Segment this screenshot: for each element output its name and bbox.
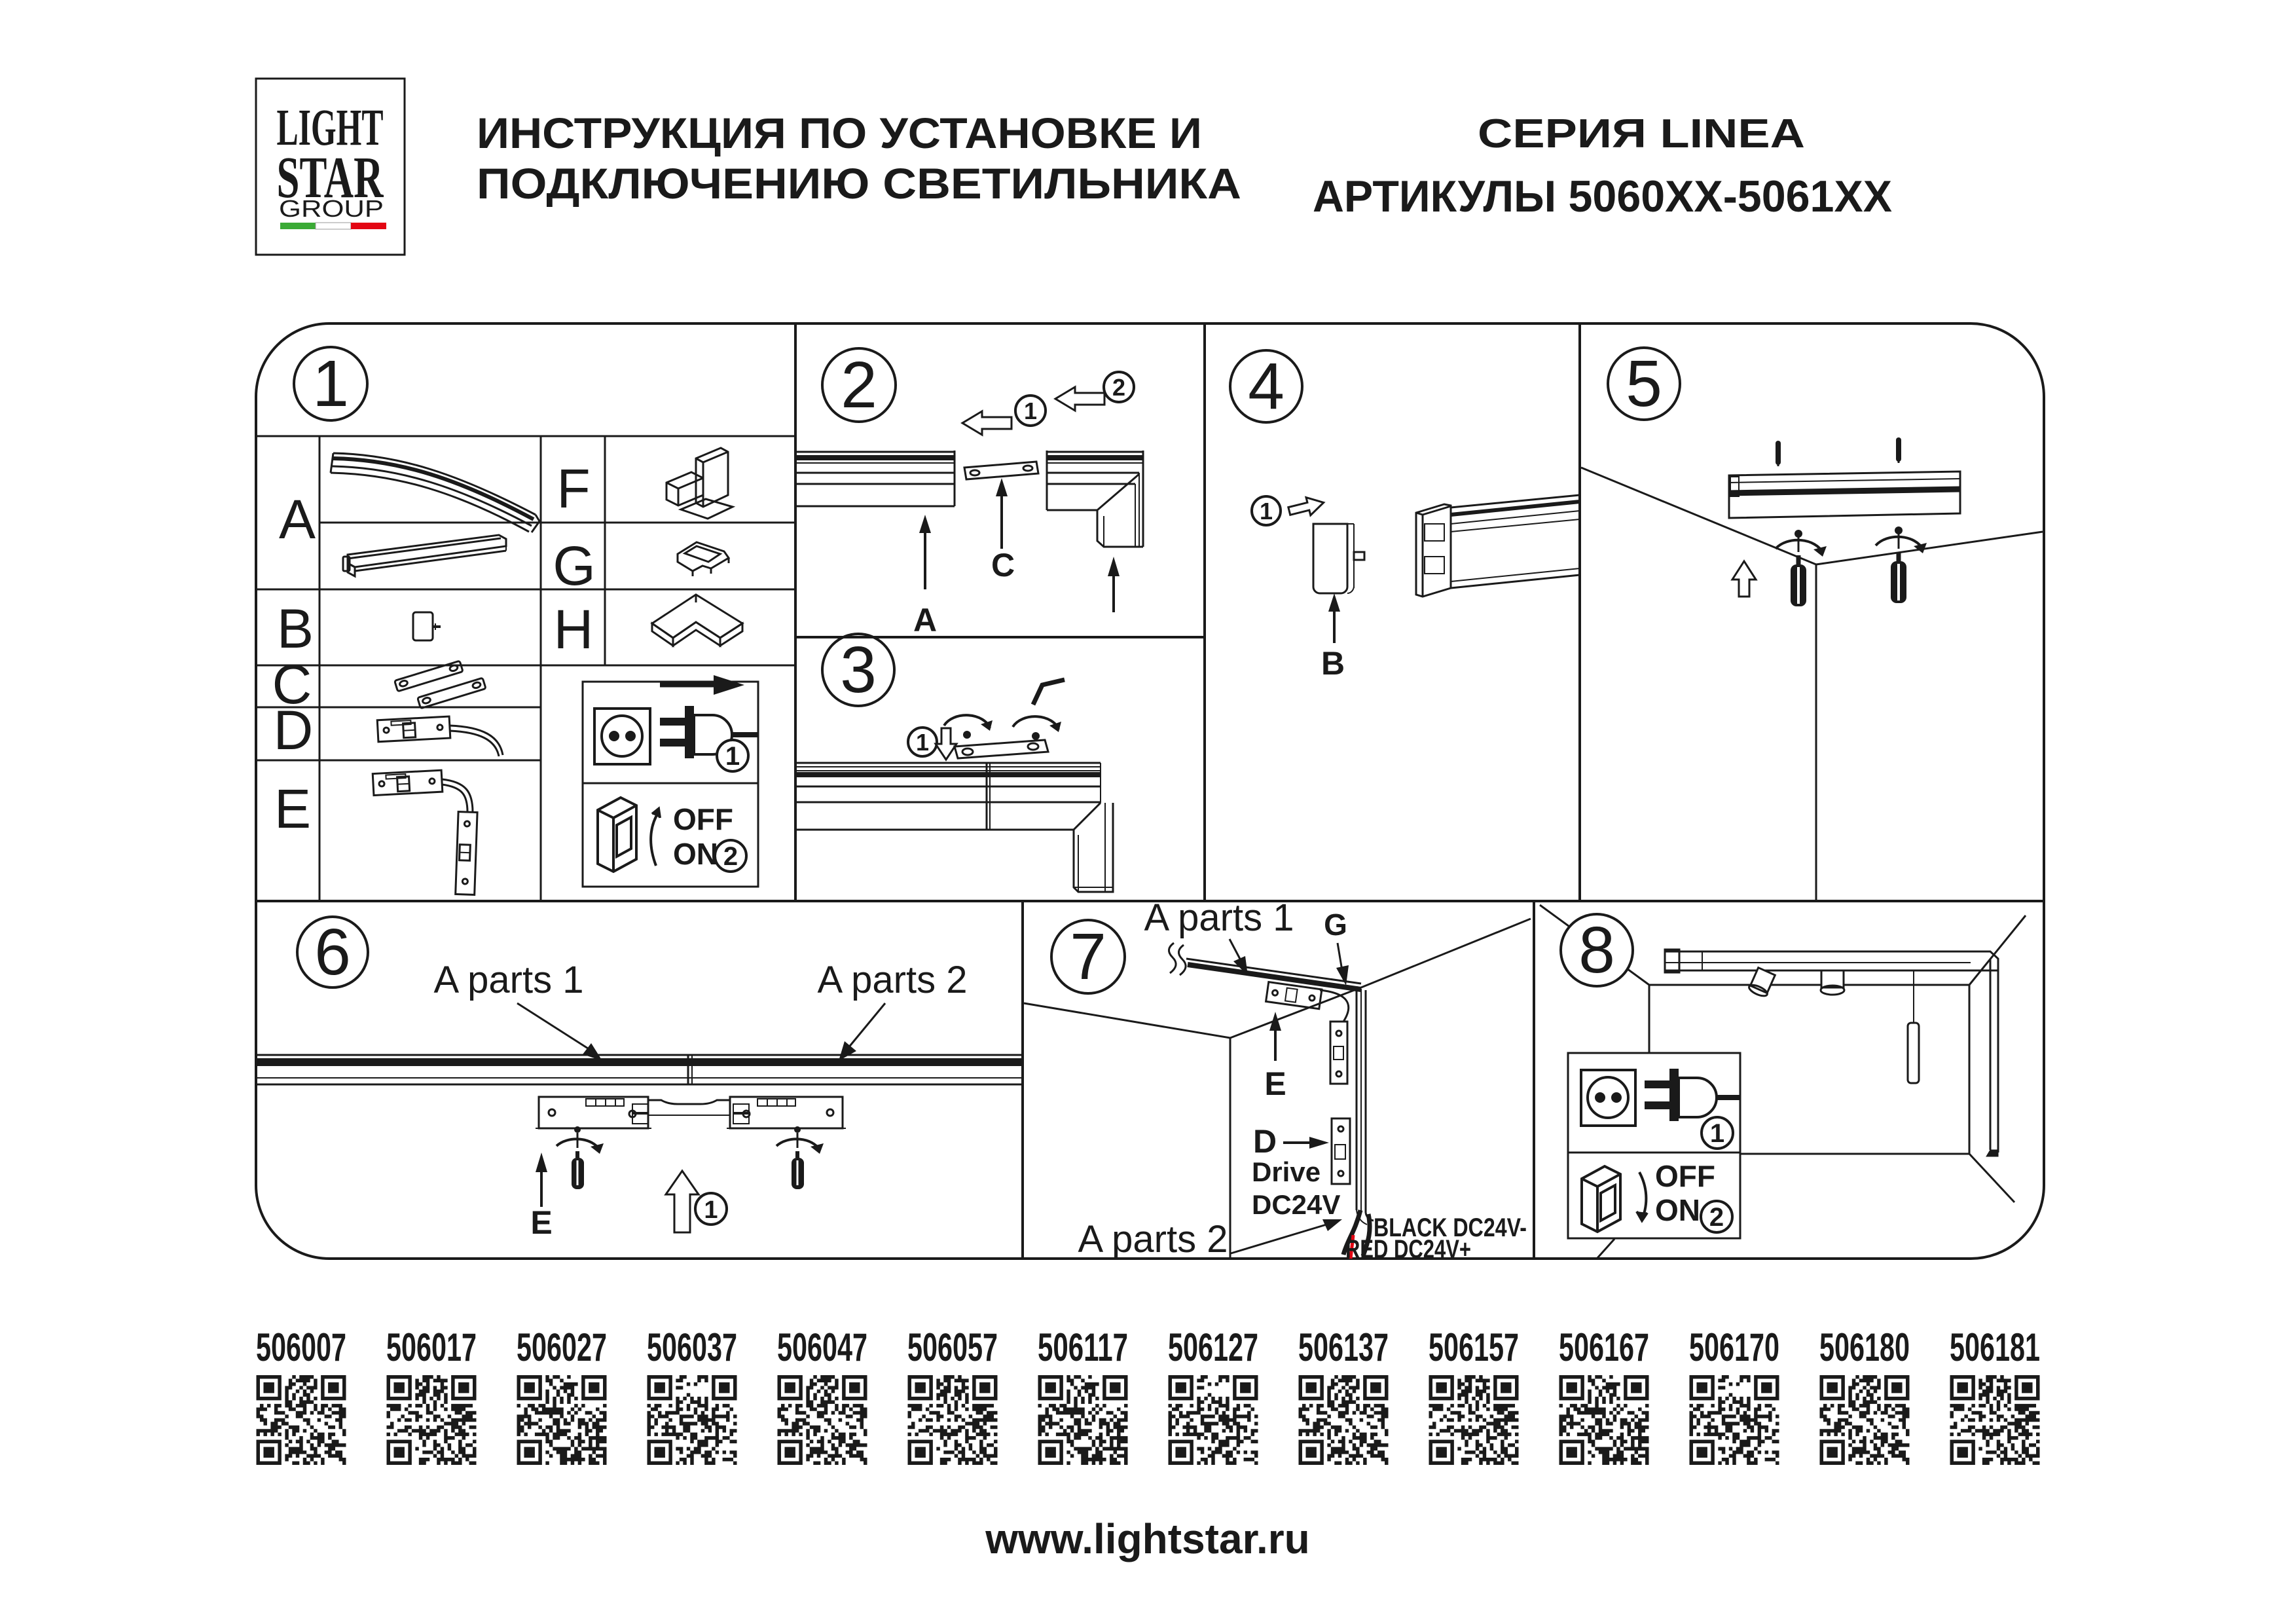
svg-text:506007: 506007 xyxy=(256,1325,346,1369)
svg-text:5: 5 xyxy=(1626,347,1662,420)
svg-text:A: A xyxy=(279,489,316,550)
svg-text:506137: 506137 xyxy=(1298,1325,1389,1369)
svg-text:OFF: OFF xyxy=(673,802,733,836)
svg-text:506157: 506157 xyxy=(1429,1325,1519,1369)
svg-text:1: 1 xyxy=(1260,498,1273,525)
svg-text:D: D xyxy=(274,699,314,761)
svg-text:506127: 506127 xyxy=(1168,1325,1258,1369)
svg-text:H: H xyxy=(554,599,594,660)
svg-text:506181: 506181 xyxy=(1950,1325,2040,1369)
svg-text:E: E xyxy=(530,1204,552,1241)
svg-text:7: 7 xyxy=(1070,920,1106,993)
svg-text:6: 6 xyxy=(314,915,351,989)
svg-text:ON: ON xyxy=(1655,1193,1700,1227)
svg-text:Drive: Drive xyxy=(1252,1156,1321,1187)
svg-text:B: B xyxy=(277,598,314,659)
svg-text:D: D xyxy=(1253,1123,1277,1160)
svg-text:www.lightstar.ru: www.lightstar.ru xyxy=(985,1515,1309,1562)
svg-text:A parts 1: A parts 1 xyxy=(1144,896,1294,939)
svg-text:1: 1 xyxy=(1024,397,1037,424)
svg-text:506167: 506167 xyxy=(1559,1325,1649,1369)
svg-text:2: 2 xyxy=(1112,374,1125,401)
svg-text:DC24V: DC24V xyxy=(1252,1189,1340,1220)
svg-text:506017: 506017 xyxy=(386,1325,477,1369)
svg-text:4: 4 xyxy=(1248,350,1285,423)
svg-text:ON: ON xyxy=(673,837,718,871)
svg-text:OFF: OFF xyxy=(1655,1159,1715,1193)
svg-text:A parts 1: A parts 1 xyxy=(434,959,584,1001)
svg-text:8: 8 xyxy=(1578,913,1615,987)
svg-text:RED DC24V+: RED DC24V+ xyxy=(1345,1235,1471,1264)
svg-text:1: 1 xyxy=(704,1196,718,1224)
svg-text:3: 3 xyxy=(840,633,877,707)
svg-text:B: B xyxy=(1321,645,1345,682)
svg-text:G: G xyxy=(1324,908,1347,942)
svg-text:A parts 2: A parts 2 xyxy=(1078,1218,1228,1261)
svg-text:506047: 506047 xyxy=(777,1325,867,1369)
svg-text:G: G xyxy=(553,535,595,597)
svg-text:E: E xyxy=(1264,1065,1286,1102)
svg-text:АРТИКУЛЫ 5060XX-5061XX: АРТИКУЛЫ 5060XX-5061XX xyxy=(1313,172,1892,221)
svg-text:A parts 2: A parts 2 xyxy=(818,959,968,1001)
svg-text:2: 2 xyxy=(1709,1203,1724,1232)
svg-text:506180: 506180 xyxy=(1819,1325,1910,1369)
svg-text:506037: 506037 xyxy=(647,1325,737,1369)
svg-text:1: 1 xyxy=(725,742,740,771)
svg-text:GROUP: GROUP xyxy=(279,195,384,222)
svg-text:E: E xyxy=(274,778,311,840)
svg-text:506027: 506027 xyxy=(517,1325,607,1369)
svg-text:A: A xyxy=(913,602,937,638)
svg-text:СЕРИЯ LINEA: СЕРИЯ LINEA xyxy=(1478,111,1805,157)
svg-text:1: 1 xyxy=(1710,1119,1724,1148)
svg-text:506057: 506057 xyxy=(907,1325,998,1369)
svg-text:1: 1 xyxy=(916,729,929,756)
svg-text:506170: 506170 xyxy=(1689,1325,1779,1369)
svg-text:2: 2 xyxy=(723,842,738,871)
svg-text:C: C xyxy=(991,547,1015,583)
svg-text:1: 1 xyxy=(312,347,349,420)
svg-text:2: 2 xyxy=(841,348,877,422)
svg-text:ПОДКЛЮЧЕНИЮ СВЕТИЛЬНИКА: ПОДКЛЮЧЕНИЮ СВЕТИЛЬНИКА xyxy=(477,159,1241,208)
svg-text:506117: 506117 xyxy=(1038,1325,1128,1369)
svg-text:F: F xyxy=(556,458,590,519)
svg-text:ИНСТРУКЦИЯ ПО УСТАНОВКЕ И: ИНСТРУКЦИЯ ПО УСТАНОВКЕ И xyxy=(477,109,1202,157)
